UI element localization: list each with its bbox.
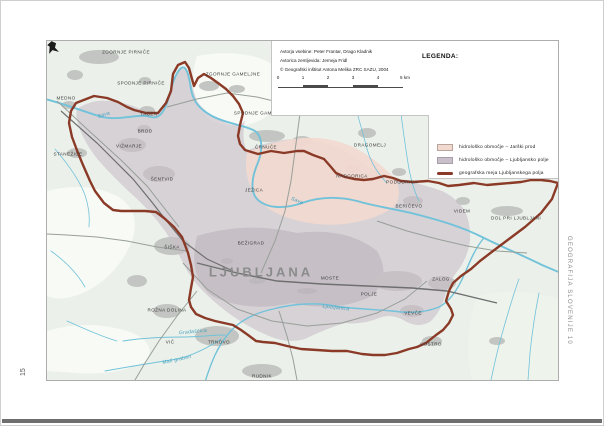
settlement-label: VIČ	[166, 340, 175, 345]
settlement-label: BEŽIGRAD	[238, 241, 265, 246]
scale-tick-label: 1	[302, 75, 305, 80]
settlement-label: JEŽICA	[245, 188, 263, 193]
settlement-label: ŠENTVID	[151, 177, 174, 182]
legend-swatch	[437, 157, 453, 164]
settlement-label: ŠIŠKA	[164, 245, 180, 250]
scale-tick-label: 0	[277, 75, 280, 80]
scale-tick-label: 3	[352, 75, 355, 80]
settlement-label: VEVČE	[404, 311, 422, 316]
settlement-label: SOSTRO	[420, 342, 442, 347]
series-side-title: GEOGRAFIJA SLOVENIJE 10	[566, 236, 572, 345]
settlement-label: ZGORNJE GAMELJNE	[206, 72, 260, 77]
legend-item: geografska meja Ljubljanskega polja	[437, 167, 549, 180]
page-number: 15	[20, 368, 27, 376]
settlement-label: NADGORICA	[336, 174, 367, 179]
credits-box: Avtorja vsebine: Peter Frantar, Drago Kl…	[271, 41, 559, 116]
legend-title: LEGENDA:	[422, 53, 458, 60]
scanned-page: ZGORNJE PIRNIČESPODNJE PIRNIČEZGORNJE GA…	[0, 0, 604, 426]
legend-label: hidrološko območje – Jarški prod	[459, 145, 536, 150]
legend-item: hidrološko območje – Ljubljansko polje	[437, 154, 549, 167]
settlement-label: PODGORICA	[386, 180, 418, 185]
settlement-label: MOSTE	[321, 276, 339, 281]
settlement-label: DOL PRI LJUBLJANI	[491, 216, 541, 221]
legend-item: hidrološko območje – Jarški prod	[437, 141, 549, 154]
legend-swatch	[437, 172, 453, 174]
settlement-label: BERIČEVO	[396, 204, 423, 209]
settlement-label: MEDNO	[56, 96, 75, 101]
settlement-label: BROD	[138, 129, 153, 134]
settlement-label: ROŽNA DOLINA	[147, 308, 186, 313]
city-label: LJUBLJANA	[209, 265, 313, 280]
settlement-label: POLJE	[361, 292, 378, 297]
settlement-label: DRAGOMELJ	[354, 143, 386, 148]
page-bottom-edge	[2, 419, 602, 423]
settlement-label: VIŽMARJE	[116, 144, 142, 149]
scale-tick-label: 4	[377, 75, 380, 80]
settlement-label: TRNOVO	[208, 340, 230, 345]
map-credits: Avtorja vsebine: Peter Frantar, Drago Kl…	[280, 47, 389, 74]
scale-segment	[353, 85, 378, 88]
scale-segment	[303, 85, 328, 88]
scale-tick-label: 2	[327, 75, 330, 80]
scale-end-label: 5 km	[400, 75, 410, 80]
scale-bar: 012345 km	[278, 75, 418, 93]
settlement-label: ZGORNJE PIRNIČE	[102, 50, 150, 55]
settlement-label: TACEN	[140, 112, 157, 117]
settlement-label: RUDNIK	[252, 374, 272, 379]
map-canvas: ZGORNJE PIRNIČESPODNJE PIRNIČEZGORNJE GA…	[46, 40, 559, 381]
settlement-label: SPODNJE PIRNIČE	[117, 81, 165, 86]
scale-baseline	[278, 87, 403, 88]
north-arrow-icon	[47, 41, 59, 55]
legend-items: hidrološko območje – Jarški prodhidrološ…	[437, 141, 549, 180]
legend-swatch	[437, 144, 453, 151]
legend-label: hidrološko območje – Ljubljansko polje	[459, 158, 549, 163]
credit-line: © Geografski inštitut Antona Melika ZRC …	[280, 65, 389, 74]
settlement-label: STANEŽIČE	[53, 152, 82, 157]
legend-label: geografska meja Ljubljanskega polja	[459, 171, 544, 176]
legend-box: hidrološko območje – Jarški prodhidrološ…	[428, 115, 559, 179]
settlement-label: ZALOG	[432, 277, 450, 282]
settlement-label: VIDEM	[454, 209, 471, 214]
credit-line: Avtorica zemljevida: Jerneja Fridl	[280, 56, 389, 65]
credit-line: Avtorja vsebine: Peter Frantar, Drago Kl…	[280, 47, 389, 56]
settlement-label: ČRNUČE	[255, 145, 277, 150]
